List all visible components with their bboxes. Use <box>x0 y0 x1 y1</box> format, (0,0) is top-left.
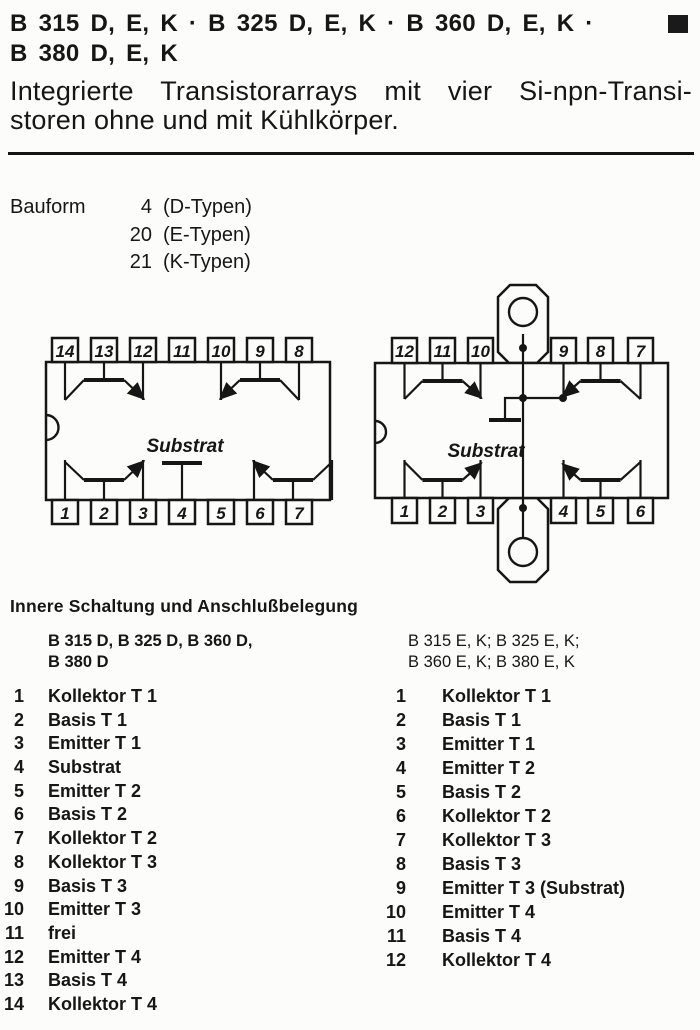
pin-number: 11 <box>382 926 406 947</box>
bauform-type: (D-Typen) <box>163 194 252 222</box>
pin-row: 2Basis T 1 <box>382 710 625 734</box>
pin-number: 2 <box>437 502 448 521</box>
page-title-line2: B 380 D, E, K <box>10 40 666 68</box>
pin-row: 12Kollektor T 4 <box>382 950 625 974</box>
pinout-list-right: 1Kollektor T 1 2Basis T 1 3Emitter T 1 4… <box>382 686 625 974</box>
pin-label: Emitter T 4 <box>442 902 535 923</box>
pin-number: 7 <box>636 342 647 361</box>
pin-label: Emitter T 2 <box>48 781 141 802</box>
pin-number: 3 <box>476 502 486 521</box>
pin-row: 14Kollektor T 4 <box>0 994 157 1018</box>
pin-label: frei <box>48 923 76 944</box>
pin-label: Kollektor T 3 <box>442 830 551 851</box>
pinout-left-subtitle-line1: B 315 D, B 325 D, B 360 D, <box>48 631 253 652</box>
pin-label: Emitter T 4 <box>48 947 141 968</box>
pin-number: 8 <box>294 342 304 361</box>
pin-label: Kollektor T 1 <box>442 686 551 707</box>
bauform-label: Bauform <box>10 194 116 222</box>
pin-label: Basis T 4 <box>442 926 521 947</box>
pin-label: Emitter T 2 <box>442 758 535 779</box>
pin-number: 11 <box>173 342 191 361</box>
pin-row: 8Basis T 3 <box>382 854 625 878</box>
pin-number: 1 <box>60 504 69 523</box>
pin-number: 7 <box>294 504 305 523</box>
pin-label: Kollektor T 2 <box>48 828 157 849</box>
pin-number: 2 <box>0 710 24 731</box>
pin-row: 7Kollektor T 2 <box>0 828 157 852</box>
pin-number: 6 <box>0 804 24 825</box>
pin-label: Kollektor T 2 <box>442 806 551 827</box>
pin-row: 5Basis T 2 <box>382 782 625 806</box>
bauform-row: Bauform 4 (D-Typen) <box>10 194 252 222</box>
pin-number: 3 <box>138 504 148 523</box>
pin-row: 12Emitter T 4 <box>0 947 157 971</box>
pin-number: 12 <box>395 342 414 361</box>
bauform-number: 21 <box>116 249 152 277</box>
pin-label: Kollektor T 4 <box>48 994 157 1015</box>
pin-number: 14 <box>56 342 75 361</box>
pin-number: 6 <box>382 806 406 827</box>
pin-label: Basis T 1 <box>442 710 521 731</box>
pin-number: 13 <box>0 970 24 991</box>
bauform-type: (K-Typen) <box>163 249 251 277</box>
pin-row: 11frei <box>0 923 157 947</box>
pin-row: 1Kollektor T 1 <box>0 686 157 710</box>
pin-number: 3 <box>0 733 24 754</box>
pin-row: 11Basis T 4 <box>382 926 625 950</box>
pin-number: 7 <box>382 830 406 851</box>
pin-number: 10 <box>471 342 490 361</box>
pin-number: 3 <box>382 734 406 755</box>
pin-label: Emitter T 1 <box>442 734 535 755</box>
heatsink-package-diagram: 12 11 10 9 8 7 1 2 3 4 5 6 <box>370 282 690 588</box>
pinout-left-subtitle-line2: B 380 D <box>48 652 253 673</box>
pin-number: 12 <box>382 950 406 971</box>
pin-number: 10 <box>212 342 231 361</box>
pin-label: Basis T 4 <box>48 970 127 991</box>
pin-row: 4Emitter T 2 <box>382 758 625 782</box>
pin-number: 5 <box>0 781 24 802</box>
datasheet-page: B 315 D, E, K · B 325 D, E, K · B 360 D,… <box>0 0 700 1030</box>
page-title-line1: B 315 D, E, K · B 325 D, E, K · B 360 D,… <box>10 10 666 38</box>
dip14-bottom-pins: 1 2 3 4 5 6 7 <box>52 500 312 524</box>
bauform-number: 4 <box>116 194 152 222</box>
pin-number: 12 <box>134 342 153 361</box>
corner-mark-icon <box>668 15 688 33</box>
pin-row: 6Basis T 2 <box>0 804 157 828</box>
pinout-right-subtitle: B 315 E, K; B 325 E, K; B 360 E, K; B 38… <box>408 631 580 673</box>
pin-number: 14 <box>0 994 24 1015</box>
pin-label: Kollektor T 1 <box>48 686 157 707</box>
pin-row: 3Emitter T 1 <box>0 733 157 757</box>
pin-number: 7 <box>0 828 24 849</box>
pin-number: 11 <box>434 342 452 361</box>
pin-number: 4 <box>176 504 187 523</box>
pinout-right-subtitle-line1: B 315 E, K; B 325 E, K; <box>408 631 580 652</box>
pin-label: Emitter T 1 <box>48 733 141 754</box>
pin-number: 4 <box>558 502 569 521</box>
pin-number: 1 <box>0 686 24 707</box>
dip14-top-pins: 14 13 12 11 10 9 8 <box>52 338 312 362</box>
pin-number: 6 <box>636 502 646 521</box>
pin-row: 4Substrat <box>0 757 157 781</box>
pin-number: 13 <box>95 342 114 361</box>
pin-number: 9 <box>0 876 24 897</box>
pinout-left-subtitle: B 315 D, B 325 D, B 360 D, B 380 D <box>48 631 253 673</box>
pin-label: Substrat <box>48 757 121 778</box>
pin-number: 1 <box>382 686 406 707</box>
pin-number: 8 <box>596 342 606 361</box>
pin-number: 8 <box>382 854 406 875</box>
bauform-type: (E-Typen) <box>163 222 251 250</box>
pin-number: 4 <box>382 758 406 779</box>
pin-number: 11 <box>0 923 24 944</box>
pin-label: Emitter T 3 <box>48 899 141 920</box>
pinout-right-subtitle-line2: B 360 E, K; B 380 E, K <box>408 652 580 673</box>
pin-row: 7Kollektor T 3 <box>382 830 625 854</box>
pin-row: 5Emitter T 2 <box>0 781 157 805</box>
substrate-label: Substrat <box>447 441 525 462</box>
pin-label: Basis T 2 <box>442 782 521 803</box>
pin-row: 9Emitter T 3 (Substrat) <box>382 878 625 902</box>
page-subtitle-line2: storen ohne und mit Kühlkörper. <box>10 106 692 135</box>
pin-number: 5 <box>382 782 406 803</box>
bauform-number: 20 <box>116 222 152 250</box>
pin-number: 9 <box>382 878 406 899</box>
pin-label: Kollektor T 4 <box>442 950 551 971</box>
pin-number: 9 <box>559 342 569 361</box>
pin-label: Basis T 2 <box>48 804 127 825</box>
pin-number: 1 <box>400 502 409 521</box>
pin-row: 10Emitter T 4 <box>382 902 625 926</box>
pin-row: 9Basis T 3 <box>0 876 157 900</box>
pin-row: 6Kollektor T 2 <box>382 806 625 830</box>
pin-number: 2 <box>382 710 406 731</box>
pin-number: 8 <box>0 852 24 873</box>
bauform-row: 20 (E-Typen) <box>10 222 252 250</box>
pin-label: Kollektor T 3 <box>48 852 157 873</box>
substrate-label: Substrat <box>146 436 224 457</box>
pin-number: 2 <box>98 504 109 523</box>
pin-row: 1Kollektor T 1 <box>382 686 625 710</box>
pin-label: Emitter T 3 (Substrat) <box>442 878 625 899</box>
pin-row: 13Basis T 4 <box>0 970 157 994</box>
pin-number: 5 <box>216 504 226 523</box>
pin-row: 8Kollektor T 3 <box>0 852 157 876</box>
pin-number: 9 <box>255 342 265 361</box>
pin-row: 2Basis T 1 <box>0 710 157 734</box>
pin-number: 5 <box>596 502 606 521</box>
page-subtitle-line1: Integrierte Transistorarrays mit vier Si… <box>10 77 692 106</box>
pin-number: 4 <box>0 757 24 778</box>
dip14-package-diagram: 14 13 12 11 10 9 8 1 2 3 4 5 6 7 <box>33 330 353 542</box>
pin-label: Basis T 3 <box>48 876 127 897</box>
pinout-list-left: 1Kollektor T 1 2Basis T 1 3Emitter T 1 4… <box>0 686 157 1018</box>
pin-row: 3Emitter T 1 <box>382 734 625 758</box>
pin-number: 10 <box>0 899 24 920</box>
pin-label: Basis T 1 <box>48 710 127 731</box>
bauform-block: Bauform 4 (D-Typen) 20 (E-Typen) 21 (K-T… <box>10 194 252 277</box>
bauform-row: 21 (K-Typen) <box>10 249 252 277</box>
pin-number: 6 <box>255 504 265 523</box>
pin-row: 10Emitter T 3 <box>0 899 157 923</box>
pinout-heading: Innere Schaltung und Anschlußbelegung <box>10 596 358 617</box>
pin-number: 12 <box>0 947 24 968</box>
horizontal-rule <box>8 152 694 155</box>
pin-number: 10 <box>382 902 406 923</box>
pin-label: Basis T 3 <box>442 854 521 875</box>
